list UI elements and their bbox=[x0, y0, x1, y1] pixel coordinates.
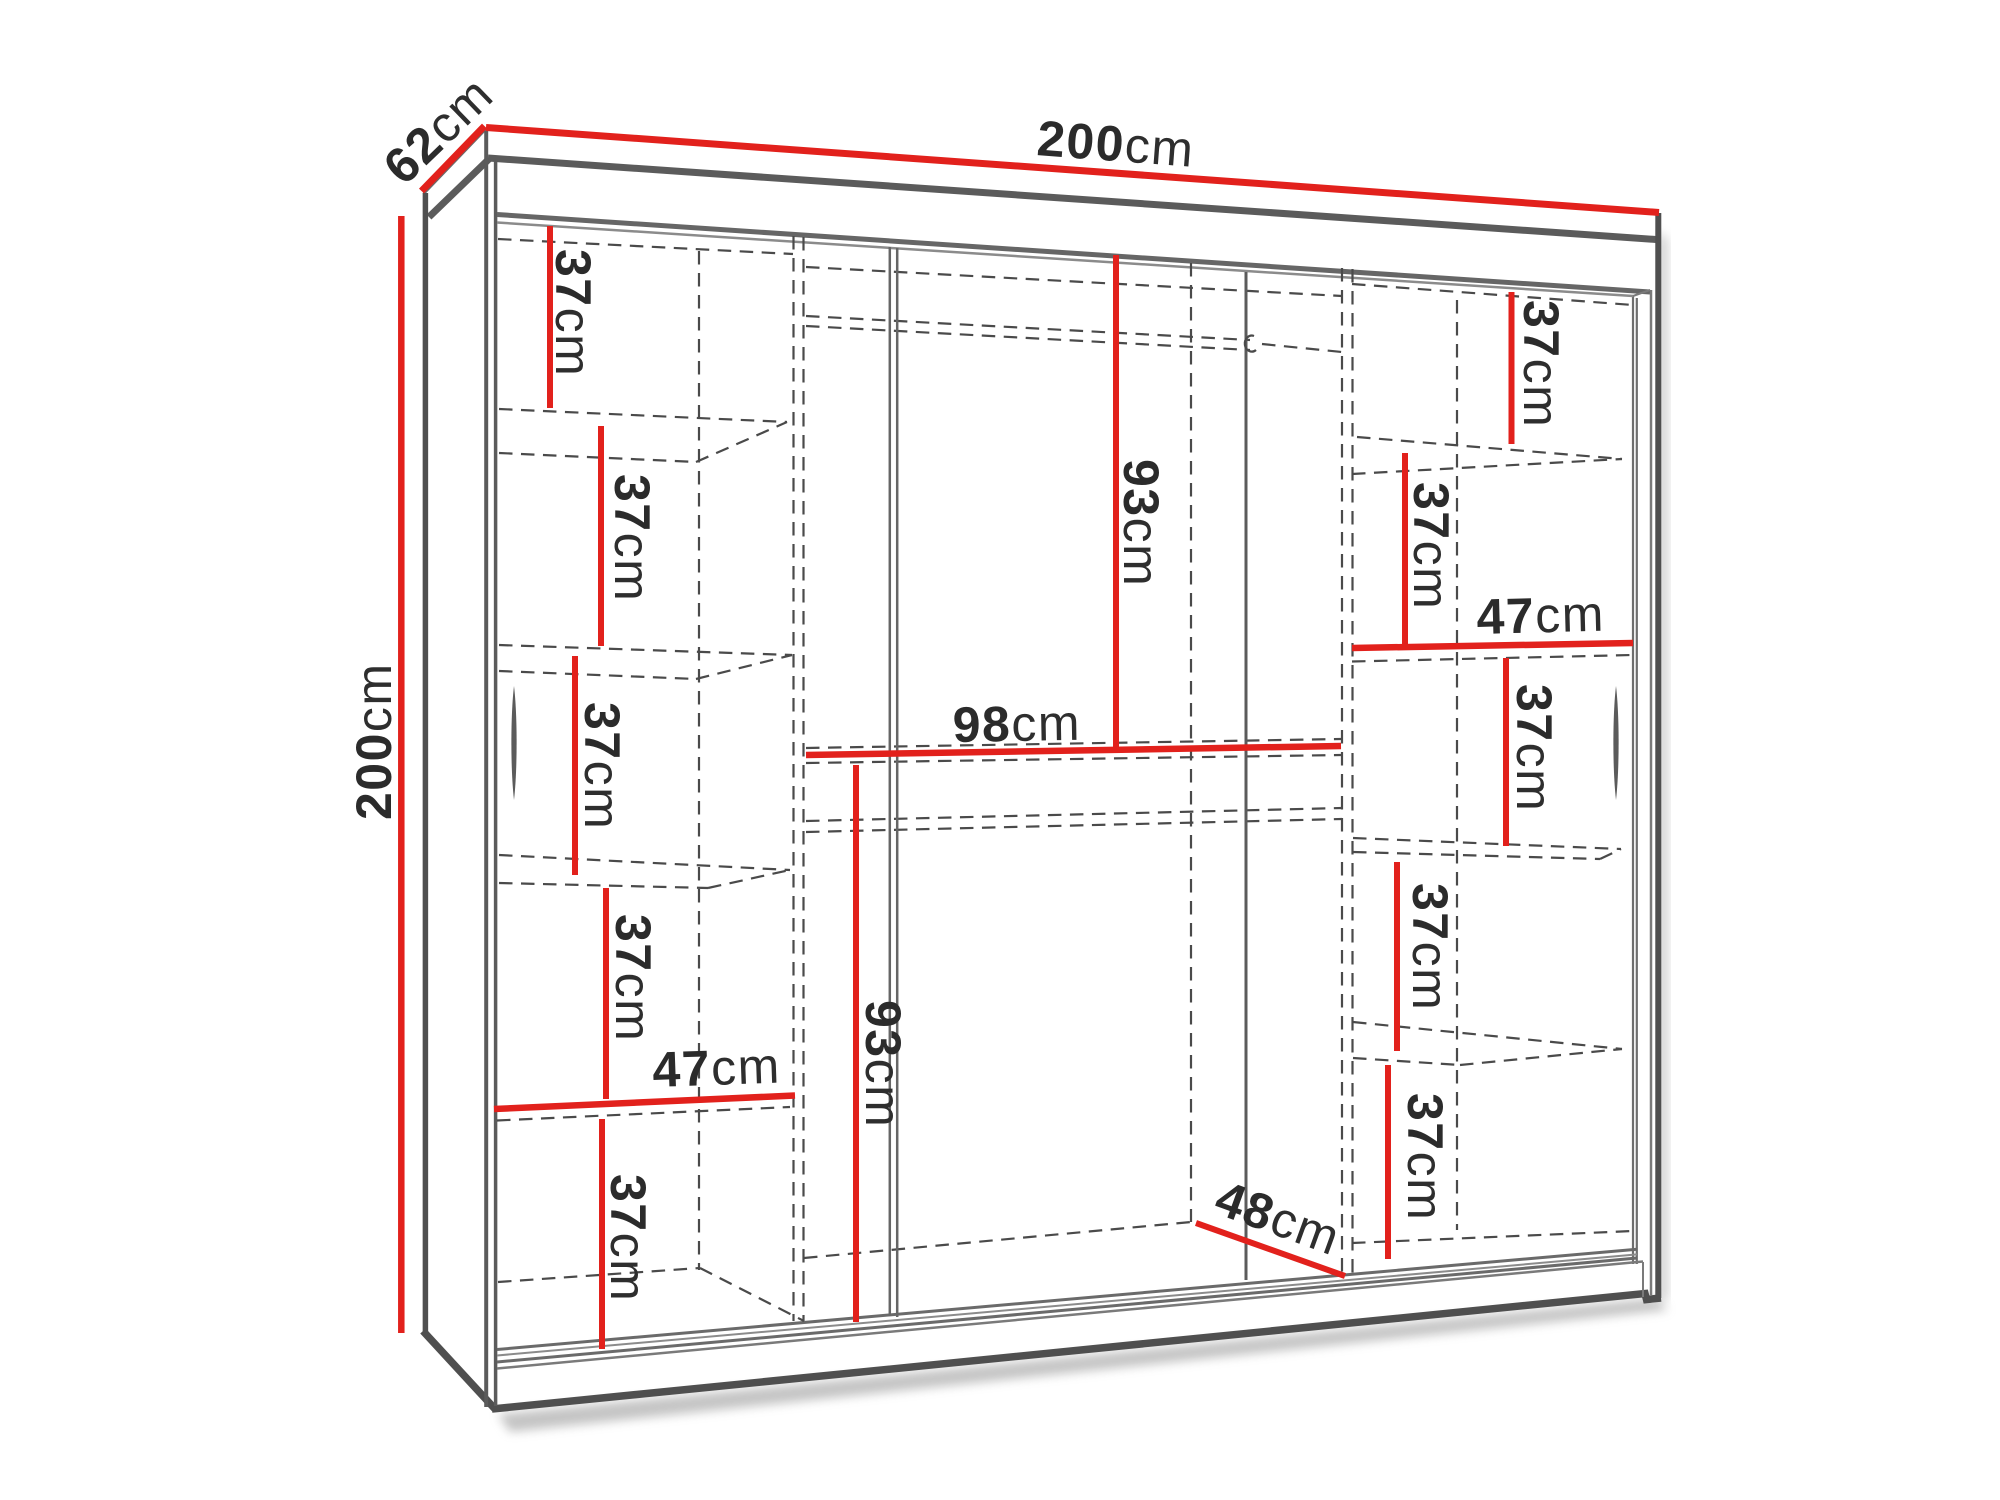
svg-text:47cm: 47cm bbox=[1476, 586, 1606, 645]
svg-text:37cm: 37cm bbox=[545, 249, 601, 377]
svg-text:200cm: 200cm bbox=[346, 662, 402, 820]
svg-text:98cm: 98cm bbox=[952, 695, 1081, 753]
svg-text:37cm: 37cm bbox=[1397, 1093, 1453, 1221]
svg-text:37cm: 37cm bbox=[605, 914, 661, 1042]
svg-text:37cm: 37cm bbox=[600, 1174, 656, 1302]
svg-text:37cm: 37cm bbox=[1402, 883, 1458, 1011]
svg-text:37cm: 37cm bbox=[574, 702, 630, 830]
svg-text:93cm: 93cm bbox=[1113, 459, 1169, 587]
svg-text:37cm: 37cm bbox=[1513, 300, 1569, 428]
svg-text:37cm: 37cm bbox=[1403, 482, 1459, 610]
svg-text:37cm: 37cm bbox=[604, 474, 660, 602]
svg-text:47cm: 47cm bbox=[651, 1038, 781, 1098]
svg-text:200cm: 200cm bbox=[1035, 110, 1196, 178]
svg-text:37cm: 37cm bbox=[1506, 684, 1562, 812]
svg-text:93cm: 93cm bbox=[855, 1000, 911, 1128]
